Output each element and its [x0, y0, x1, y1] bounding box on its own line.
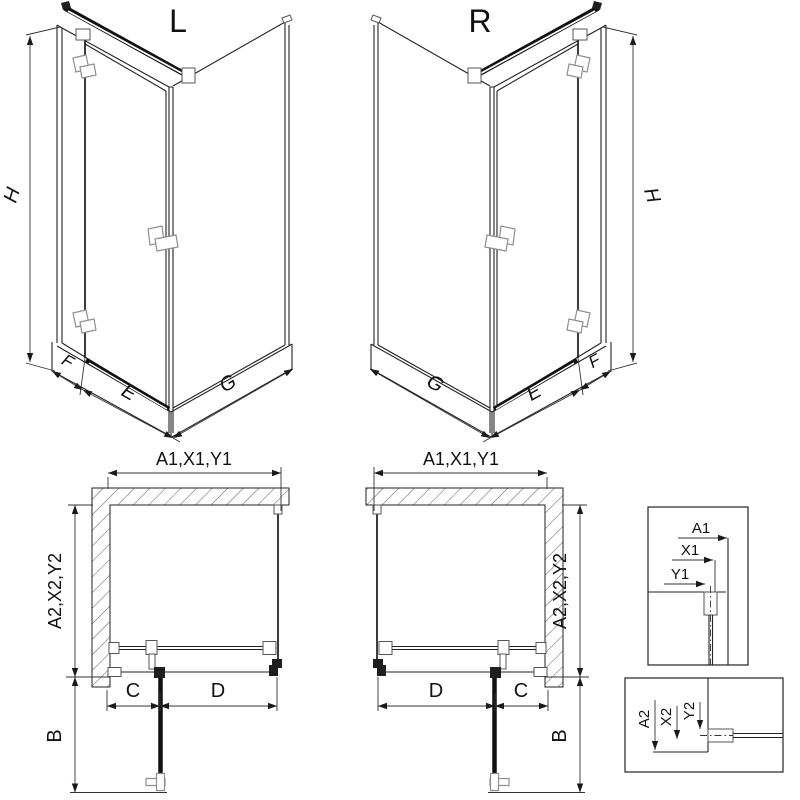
iso-view-left: L H F E G — [0, 1, 293, 442]
dim-label-b-left: B — [44, 729, 66, 742]
wall-hatched-right-plan — [366, 488, 563, 687]
detail-label-a2: A2 — [636, 710, 653, 728]
dim-label-d-right: D — [429, 680, 443, 702]
detail-label-a1: A1 — [692, 520, 710, 537]
detail-label-x2: X2 — [658, 708, 675, 726]
dim-label-a1-left: A1,X1,Y1 — [156, 449, 232, 469]
dim-label-h-right: H — [639, 185, 664, 206]
dim-label-a2-right: A2,X2,Y2 — [550, 553, 570, 629]
iso-view-right: R H F E G — [370, 1, 665, 442]
dim-label-g-right: G — [423, 370, 447, 397]
dim-label-c-right: C — [514, 680, 528, 702]
dim-label-a1-right: A1,X1,Y1 — [423, 449, 499, 469]
detail-label-y2: Y2 — [681, 702, 698, 720]
detail-box-vertical: A2 X2 Y2 — [625, 678, 783, 772]
diagram-canvas: L H F E G R H F E G A1,X1,Y1 A2,X2,Y2 B … — [0, 0, 800, 800]
dim-label-b-right: B — [549, 729, 571, 742]
dim-label-h-left: H — [0, 185, 25, 206]
variant-label-left: L — [169, 3, 187, 39]
plan-view-right: A1,X1,Y1 A2,X2,Y2 B D C — [366, 449, 589, 793]
detail-label-x1: X1 — [681, 542, 699, 559]
glass-pane-lines — [733, 734, 783, 738]
wall-hatched-left-plan — [92, 488, 289, 687]
shower-enclosure-technical-drawing: L H F E G R H F E G A1,X1,Y1 A2,X2,Y2 B … — [0, 0, 800, 800]
dim-label-d-left: D — [211, 680, 225, 702]
dim-label-f-right: F — [585, 350, 605, 372]
detail-box-horizontal: A1 X1 Y1 — [648, 507, 748, 665]
detail-label-y1: Y1 — [671, 566, 689, 583]
dim-label-g-left: G — [216, 370, 240, 397]
plan-view-left: A1,X1,Y1 A2,X2,Y2 B C D — [44, 449, 289, 793]
dim-label-f-left: F — [59, 350, 79, 372]
dim-label-a2-left: A2,X2,Y2 — [45, 553, 65, 629]
dim-label-c-left: C — [126, 680, 140, 702]
variant-label-right: R — [468, 3, 491, 39]
dim-label-e-right: E — [523, 380, 546, 406]
